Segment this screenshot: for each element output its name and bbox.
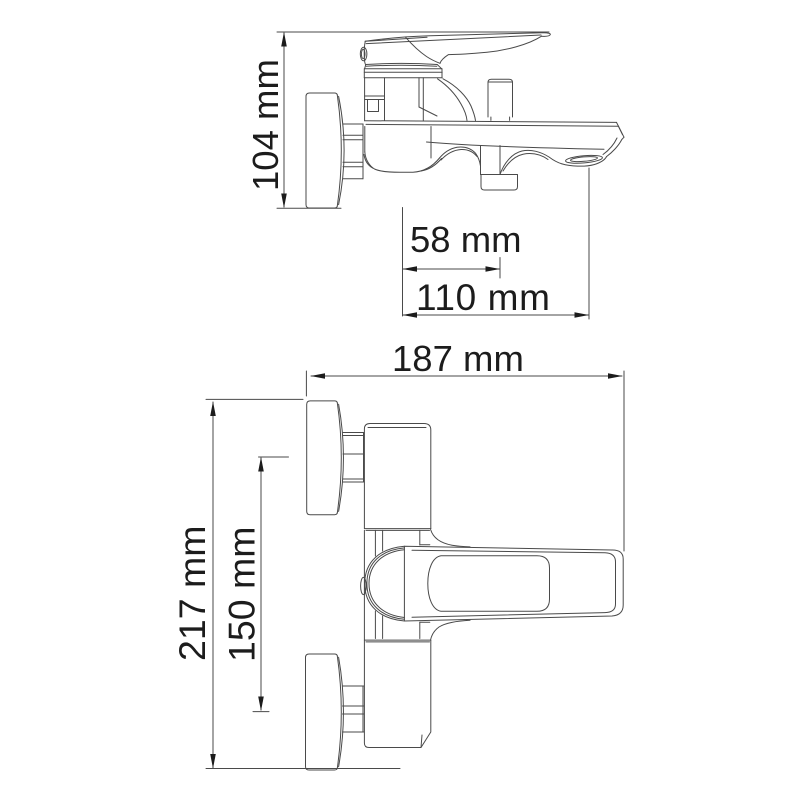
svg-text:150 mm: 150 mm — [221, 527, 263, 662]
svg-text:104 mm: 104 mm — [245, 59, 286, 191]
svg-text:187 mm: 187 mm — [392, 338, 524, 379]
svg-text:217 mm: 217 mm — [171, 526, 213, 661]
svg-text:110 mm: 110 mm — [416, 277, 551, 318]
svg-text:58 mm: 58 mm — [410, 219, 522, 260]
